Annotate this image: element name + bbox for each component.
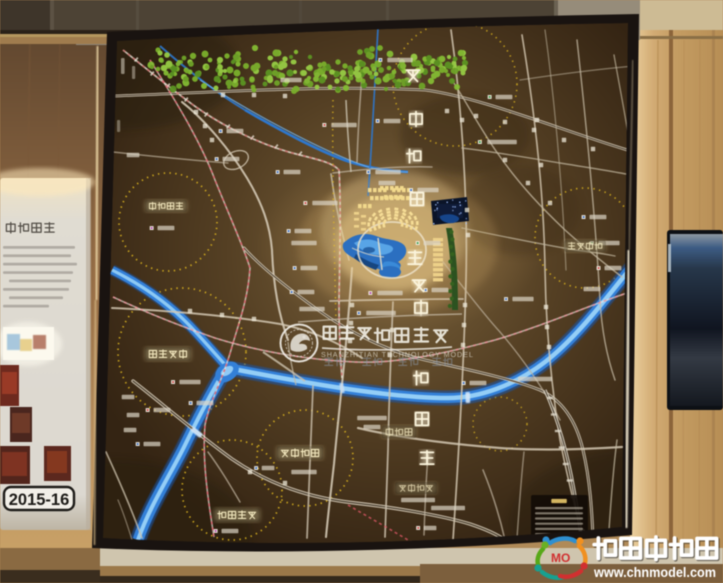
svg-text:2015-16: 2015-16 [9, 491, 70, 509]
svg-text:SHANZHITIAN TECHNOLOGY MODEL: SHANZHITIAN TECHNOLOGY MODEL [321, 350, 474, 359]
svg-text:www.chnmodel.com: www.chnmodel.com [593, 564, 716, 580]
svg-text:MO: MO [551, 551, 570, 565]
